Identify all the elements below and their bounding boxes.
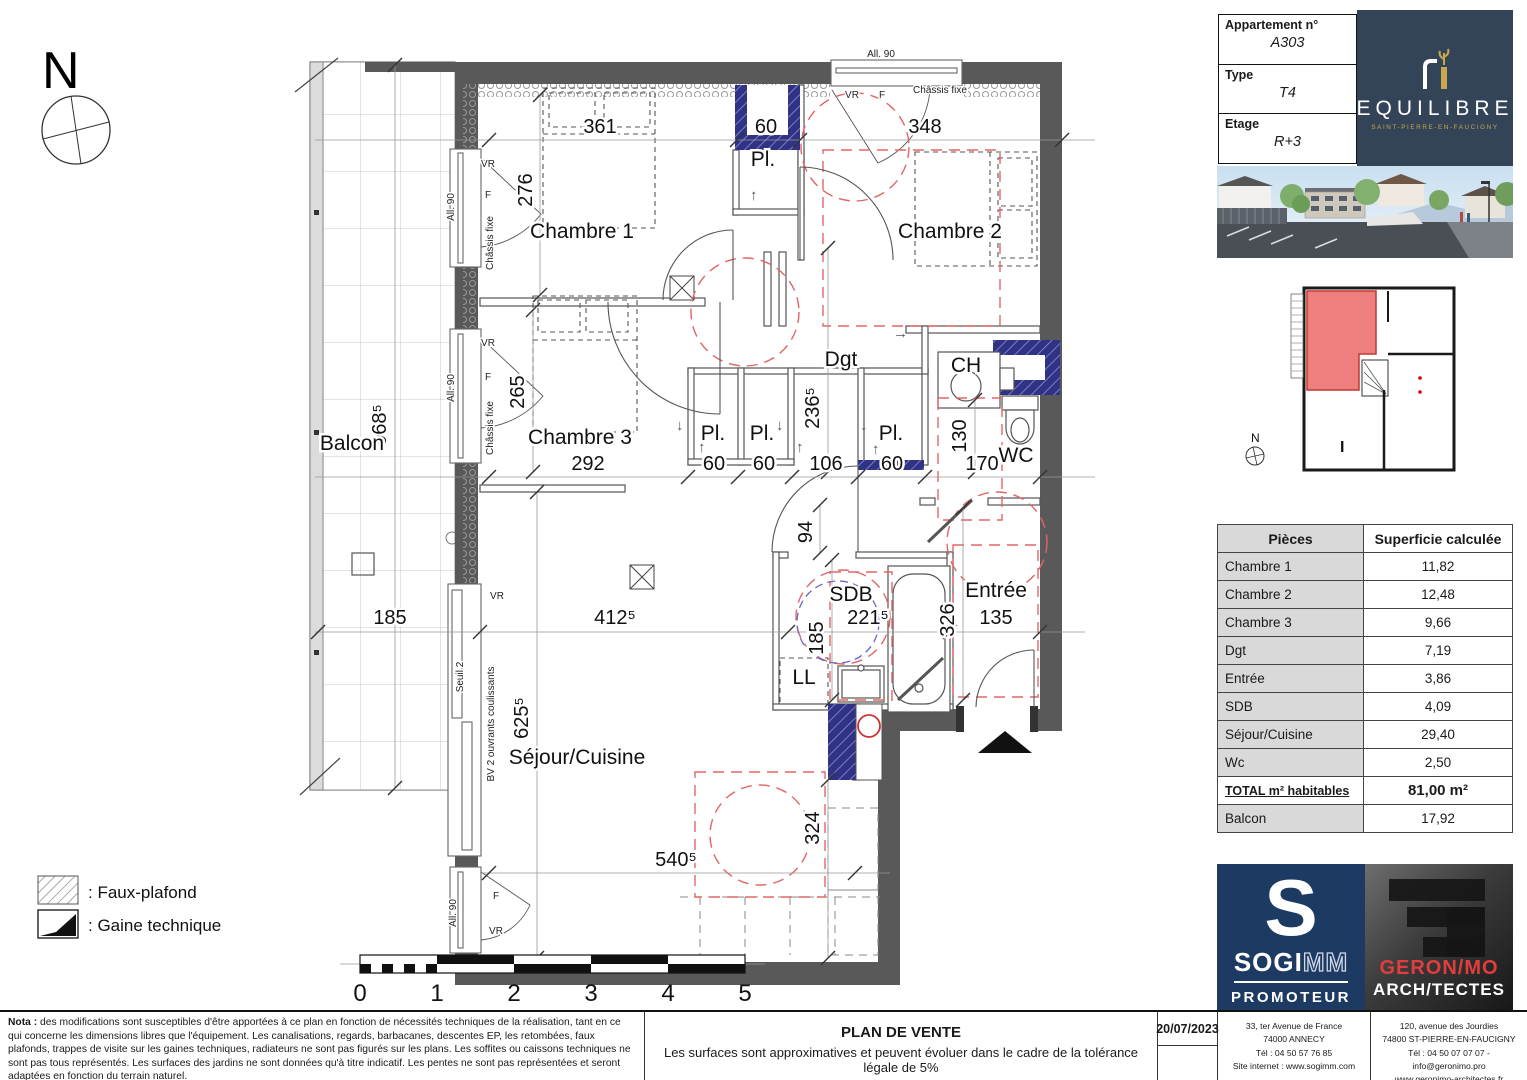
- label-all90: All. 90: [446, 374, 457, 402]
- row-value: 2,50: [1364, 749, 1513, 777]
- label-vr: VR: [845, 90, 859, 101]
- table-row: Chambre 212,48: [1218, 581, 1513, 609]
- faux-plafond-hatch: [962, 84, 1040, 97]
- table-row: SDB4,09: [1218, 693, 1513, 721]
- type-value: T4: [1225, 85, 1350, 101]
- address-line: 74000 ANNECY: [1218, 1033, 1370, 1046]
- address-line: 120, avenue des Jourdies: [1371, 1020, 1527, 1033]
- row-name: Wc: [1218, 749, 1364, 777]
- window-swings: [481, 90, 930, 940]
- label-pl-top: Pl.: [751, 148, 776, 171]
- row-value: 7,19: [1364, 637, 1513, 665]
- label-f: F: [485, 372, 491, 383]
- exterior-walls: [455, 62, 1062, 985]
- faux-plafond-hatch: [463, 463, 478, 583]
- label-ll: LL: [792, 666, 815, 689]
- label-ch: CH: [951, 354, 981, 377]
- label-f: F: [485, 190, 491, 201]
- label-f: F: [879, 90, 885, 101]
- brand-city: SAINT-PIERRE-EN-FAUCIGNY: [1371, 124, 1498, 131]
- label-chassis-fixe: Châssis fixe: [913, 85, 967, 96]
- type-label: Type: [1225, 68, 1350, 82]
- faux-plafond-hatch: [463, 84, 478, 148]
- north-compass-icon: N: [42, 42, 110, 164]
- entrance-door: [956, 650, 1038, 753]
- type-row: Type T4: [1219, 65, 1356, 115]
- row-value: 11,82: [1364, 553, 1513, 581]
- label-sdb: SDB: [829, 583, 872, 606]
- col-superficie: Superficie calculée: [1364, 525, 1513, 553]
- dim-pl-c: 60: [881, 453, 903, 475]
- dim-hall: 106: [809, 453, 842, 475]
- apartment-label: Appartement n°: [1225, 18, 1350, 32]
- label-all90: All. 90: [446, 193, 457, 221]
- label-vr: VR: [489, 926, 503, 937]
- label-chambre3: Chambre 3: [528, 426, 632, 449]
- floor-plan-drawing: N: [0, 0, 1216, 1010]
- geronimo-tagline: ARCH/TECTES: [1373, 980, 1505, 1000]
- table-row: Chambre 111,82: [1218, 553, 1513, 581]
- label-chassis-fixe: Châssis fixe: [485, 216, 496, 270]
- row-name: SDB: [1218, 693, 1364, 721]
- label-chassis-fixe: Châssis fixe: [485, 401, 496, 455]
- label-sejour-cuisine: Séjour/Cuisine: [509, 746, 646, 769]
- row-value: 29,40: [1364, 721, 1513, 749]
- faux-plafond-hatch: [463, 268, 478, 328]
- floor-value: R+3: [1225, 134, 1350, 150]
- dim-ch3-height: 265: [507, 375, 529, 408]
- exterior-render-image: [1217, 166, 1513, 258]
- plan-date: 20/07/2023: [1158, 1012, 1217, 1046]
- brand-name: EQUILIBRE: [1356, 97, 1513, 121]
- key-plan-north: N: [1251, 431, 1260, 445]
- key-plan-unit-label: I: [1340, 439, 1344, 456]
- apartment-value: A303: [1225, 35, 1350, 51]
- sogimm-name: SOGIMM: [1234, 947, 1348, 983]
- sogimm-logo: S SOGIMM PROMOTEUR: [1217, 864, 1365, 1010]
- row-name: Chambre 1: [1218, 553, 1364, 581]
- dim-ch2-width: 348: [908, 116, 941, 138]
- svg-text:↑: ↑: [796, 439, 804, 456]
- table-row: Dgt7,19: [1218, 637, 1513, 665]
- floor-row: Etage R+3: [1219, 114, 1356, 164]
- address-line: Tél : 04 50 57 76 85: [1218, 1047, 1370, 1060]
- row-name: Entrée: [1218, 665, 1364, 693]
- sogimm-outline: MM: [1303, 947, 1348, 977]
- company-logos: S SOGIMM PROMOTEUR GERON/MO ARCH/TECTES: [1217, 864, 1513, 1010]
- label-pl-b: Pl.: [750, 422, 775, 445]
- dim-balcon-width: 185: [373, 607, 406, 629]
- dim-dgt-height: 236⁵: [802, 387, 824, 429]
- total-label: TOTAL m² habitables: [1218, 777, 1364, 805]
- plan-title-cell: PLAN DE VENTE Les surfaces sont approxim…: [645, 1012, 1158, 1080]
- date-cell: 20/07/2023: [1158, 1012, 1218, 1080]
- sogimm-address: 33, ter Avenue de France 74000 ANNECY Té…: [1218, 1012, 1371, 1080]
- row-name: Chambre 2: [1218, 581, 1364, 609]
- areas-table: Pièces Superficie calculée Chambre 111,8…: [1217, 524, 1513, 833]
- sogimm-s: S: [1264, 869, 1317, 947]
- label-vr: VR: [481, 338, 495, 349]
- scale-0: 0: [353, 980, 366, 1007]
- dim-ch3-width: 292: [571, 453, 604, 475]
- dim-pl-top: 60: [755, 116, 777, 138]
- document-title: PLAN DE VENTE: [645, 1024, 1157, 1041]
- col-pieces: Pièces: [1218, 525, 1364, 553]
- label-seuil: Seuil 2: [455, 661, 466, 692]
- apartment-info-box: Appartement n° A303 Type T4 Etage R+3: [1218, 14, 1357, 164]
- address-line: Site internet : www.sogimm.com: [1218, 1060, 1370, 1073]
- address-line: 33, ter Avenue de France: [1218, 1020, 1370, 1033]
- table-row: Séjour/Cuisine29,40: [1218, 721, 1513, 749]
- legend-gaine: : Gaine technique: [88, 916, 221, 935]
- label-all90: All. 90: [448, 899, 459, 927]
- row-name: Chambre 3: [1218, 609, 1364, 637]
- dim-sdb-height: 185: [806, 621, 828, 654]
- dim-entree-width: 135: [979, 607, 1012, 629]
- plan-de-vente-page: { "header": { "apartment_label": "Appart…: [0, 0, 1527, 1080]
- sogimm-tagline: PROMOTEUR: [1231, 989, 1351, 1006]
- address-line: 74800 ST-PIERRE-EN-FAUCIGNY: [1371, 1033, 1527, 1046]
- apartment-number-row: Appartement n° A303: [1219, 15, 1356, 65]
- legend-faux-plafond: : Faux-plafond: [88, 883, 197, 902]
- label-chambre1: Chambre 1: [530, 220, 634, 243]
- label-vr: VR: [481, 159, 495, 170]
- tolerance-note: Les surfaces sont approximatives et peuv…: [645, 1045, 1157, 1075]
- geronimo-logo: GERON/MO ARCH/TECTES: [1365, 864, 1513, 1010]
- row-value: 4,09: [1364, 693, 1513, 721]
- label-balcon: Balcon: [320, 432, 384, 455]
- label-vr: VR: [490, 591, 504, 602]
- nota-text: des modifications sont susceptibles d'êt…: [8, 1017, 631, 1080]
- address-line: Tél : 04 50 07 07 07 - info@geronimo.pro: [1371, 1047, 1527, 1074]
- svg-text:→: →: [893, 325, 908, 342]
- dim-ch1-height: 276: [515, 173, 537, 206]
- dim-pl-a: 60: [703, 453, 725, 475]
- dim-kitchen-height: 324: [802, 811, 824, 844]
- scale-5: 5: [738, 980, 751, 1007]
- areas-header-row: Pièces Superficie calculée: [1218, 525, 1513, 553]
- key-plan: I N: [1224, 282, 1504, 482]
- geronimo-name: GERON/MO: [1379, 957, 1498, 980]
- geronimo-address: 120, avenue des Jourdies 74800 ST-PIERRE…: [1371, 1012, 1527, 1080]
- dim-entree-height: 326: [937, 603, 959, 636]
- table-row: Entrée3,86: [1218, 665, 1513, 693]
- scale-3: 3: [584, 980, 597, 1007]
- dim-sdb-width: 221⁵: [847, 607, 889, 629]
- dim-sejour-width: 412⁵: [594, 607, 636, 629]
- legend: : Faux-plafond : Gaine technique: [38, 876, 221, 938]
- label-wc: WC: [999, 444, 1034, 467]
- label-entree: Entrée: [965, 579, 1027, 602]
- compass-n-label: N: [42, 42, 80, 100]
- label-f: F: [493, 891, 499, 902]
- info-panel: Appartement n° A303 Type T4 Etage R+3 EQ…: [1216, 0, 1527, 1010]
- label-pl-a: Pl.: [701, 422, 726, 445]
- label-chambre2: Chambre 2: [898, 220, 1002, 243]
- dim-ch1-width: 361: [583, 116, 616, 138]
- equilibre-glyph-icon: [1413, 45, 1457, 91]
- row-name: Séjour/Cuisine: [1218, 721, 1364, 749]
- row-value: 3,86: [1364, 665, 1513, 693]
- address-line: www.geronimo-architectes.fr: [1371, 1073, 1527, 1080]
- label-bv-coulissants: BV 2 ouvrants coulissants: [486, 666, 497, 781]
- floor-label: Etage: [1225, 117, 1350, 131]
- table-row: Wc2,50: [1218, 749, 1513, 777]
- label-all90: All. 90: [867, 49, 895, 60]
- row-value: 12,48: [1364, 581, 1513, 609]
- scale-1: 1: [430, 980, 443, 1007]
- title-block-footer: Nota : des modifications sont susceptibl…: [0, 1010, 1527, 1080]
- balcon-row: Balcon 17,92: [1218, 805, 1513, 833]
- nota-label: Nota :: [8, 1017, 37, 1028]
- sogimm-solid: SOGI: [1234, 947, 1303, 977]
- geronimo-glyph-icon: [1379, 875, 1499, 957]
- label-dgt: Dgt: [825, 348, 858, 371]
- scale-4: 4: [661, 980, 674, 1007]
- equilibre-logo: EQUILIBRE SAINT-PIERRE-EN-FAUCIGNY: [1357, 10, 1513, 166]
- nota-cell: Nota : des modifications sont susceptibl…: [0, 1012, 645, 1080]
- balcon-label: Balcon: [1218, 805, 1364, 833]
- svg-text:↓: ↓: [776, 417, 784, 434]
- table-row: Chambre 39,66: [1218, 609, 1513, 637]
- dim-sdb-door: 94: [795, 521, 817, 543]
- dim-wc-length: 170: [965, 453, 998, 475]
- section-markers: [630, 276, 694, 589]
- row-value: 9,66: [1364, 609, 1513, 637]
- balcon-value: 17,92: [1364, 805, 1513, 833]
- dim-sejour-width2: 540⁵: [655, 849, 697, 871]
- dim-sejour-height: 625⁵: [511, 697, 533, 739]
- dim-wc-width: 130: [949, 419, 971, 452]
- key-plan-compass-icon: N: [1246, 431, 1264, 465]
- svg-text:↑: ↑: [750, 187, 758, 204]
- row-name: Dgt: [1218, 637, 1364, 665]
- faux-plafond-swatch: [38, 876, 78, 904]
- total-value: 81,00 m²: [1364, 777, 1513, 805]
- svg-text:↓: ↓: [676, 417, 684, 434]
- dim-pl-b: 60: [753, 453, 775, 475]
- svg-text:↓: ↓: [860, 417, 868, 434]
- label-pl-c: Pl.: [879, 422, 904, 445]
- scale-2: 2: [507, 980, 520, 1007]
- total-row: TOTAL m² habitables 81,00 m²: [1218, 777, 1513, 805]
- entrance-arrow-icon: [978, 731, 1032, 753]
